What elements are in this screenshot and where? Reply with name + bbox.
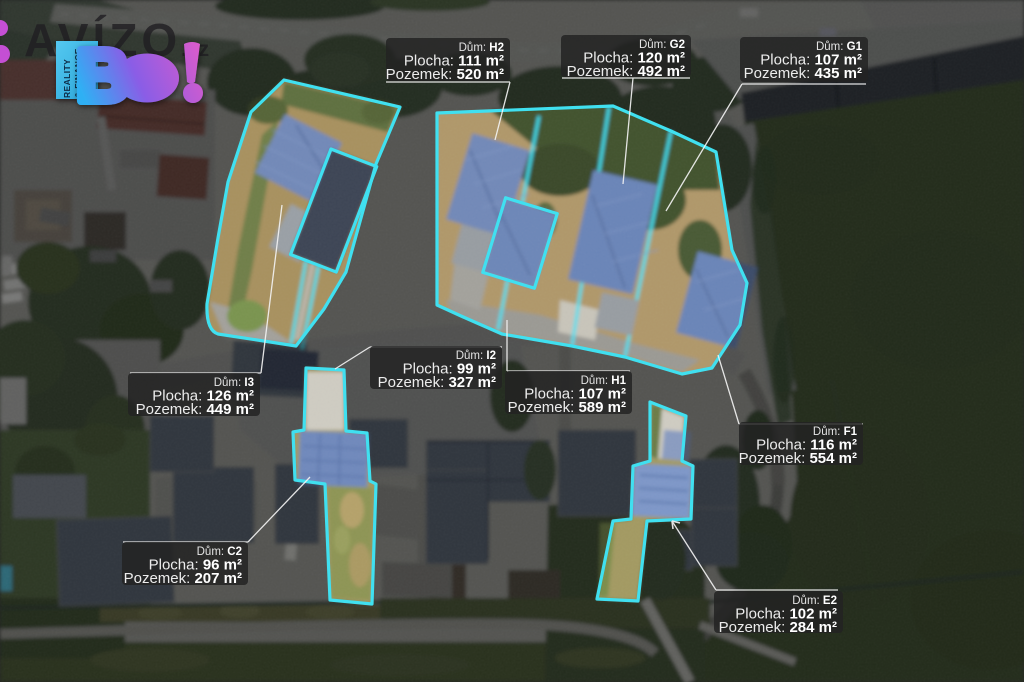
svg-text:Pozemek: 449 m²: Pozemek: 449 m²: [136, 401, 254, 418]
svg-text:REALITY: REALITY: [62, 59, 72, 98]
svg-text:Pozemek: 435 m²: Pozemek: 435 m²: [744, 65, 862, 82]
svg-text:Pozemek: 554 m²: Pozemek: 554 m²: [739, 450, 857, 467]
svg-text:Pozemek: 327 m²: Pozemek: 327 m²: [378, 374, 496, 391]
svg-text:Pozemek: 207 m²: Pozemek: 207 m²: [124, 570, 242, 587]
svg-text:Pozemek: 492 m²: Pozemek: 492 m²: [567, 63, 685, 80]
svg-text:Pozemek: 520 m²: Pozemek: 520 m²: [386, 66, 504, 83]
svg-text:Pozemek: 589 m²: Pozemek: 589 m²: [508, 399, 626, 416]
svg-text:Pozemek: 284 m²: Pozemek: 284 m²: [719, 619, 837, 636]
